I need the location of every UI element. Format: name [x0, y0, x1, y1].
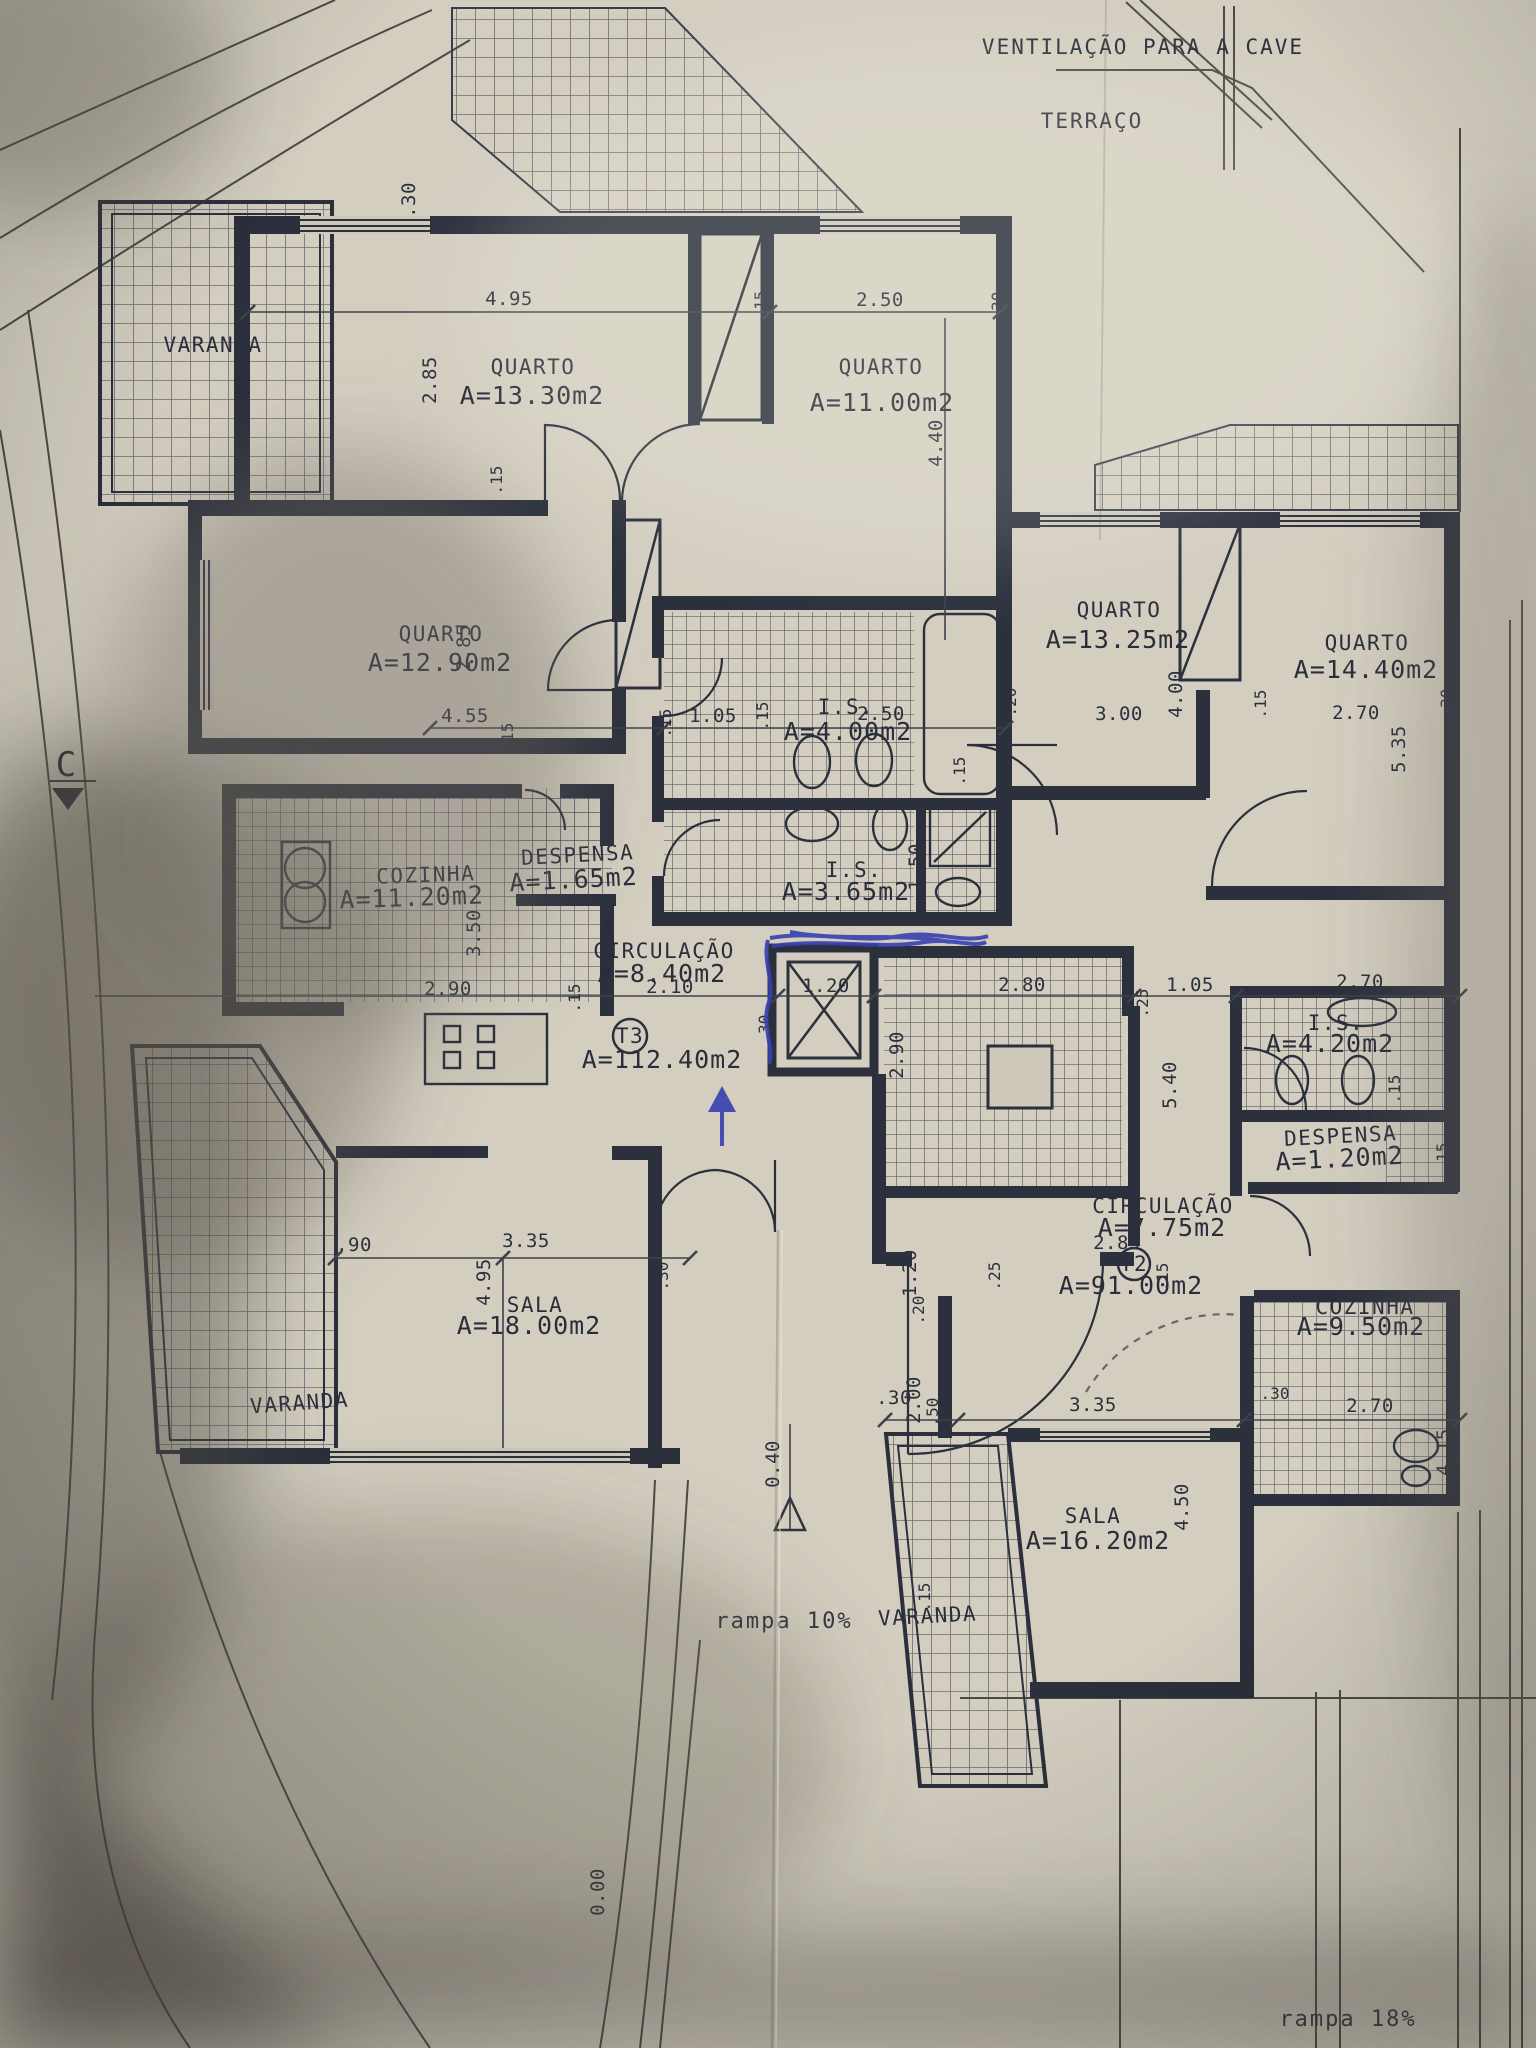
vignette [0, 0, 1536, 2048]
floor-plan-drawing: C VARANDA QUARTO A=13.30m2 QUARTO A=11.0… [0, 0, 1536, 2048]
photographed-floor-plan: C VARANDA QUARTO A=13.30m2 QUARTO A=11.0… [0, 0, 1536, 2048]
